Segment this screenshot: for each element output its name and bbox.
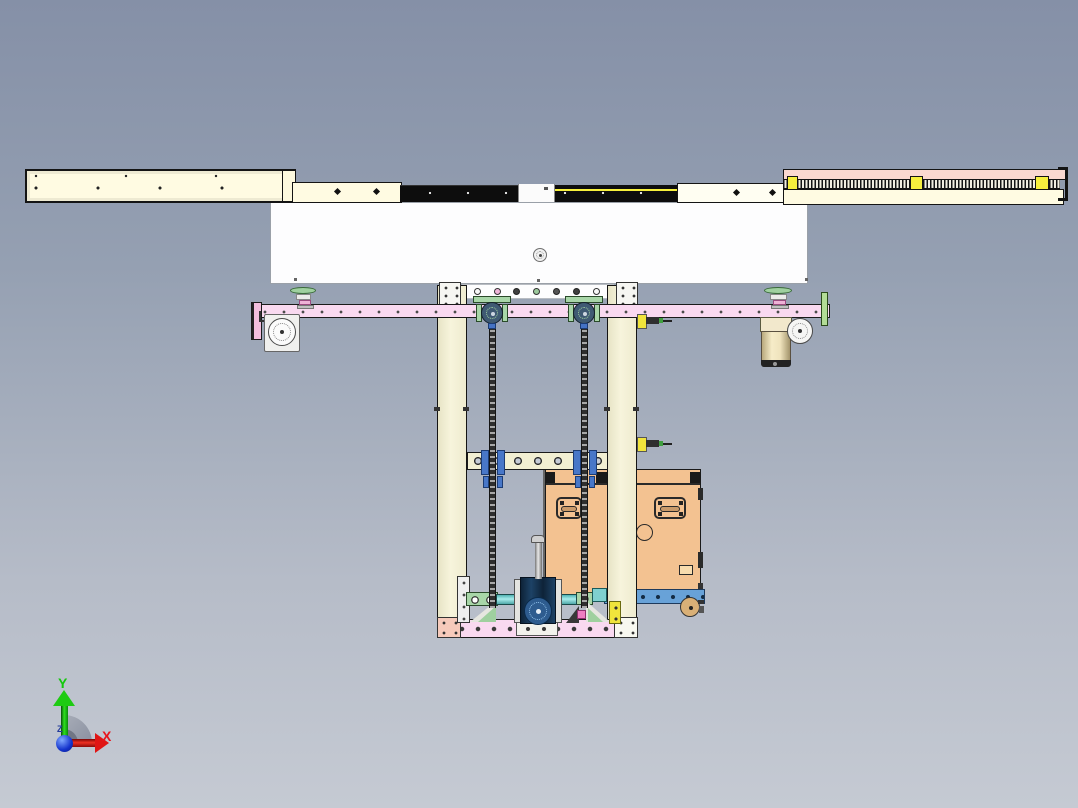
carriage-mark-right (805, 278, 808, 281)
carriage-center-bolt (533, 248, 547, 262)
orange-box-hole (636, 524, 653, 541)
pink-beam (255, 304, 830, 318)
shaft-cap (531, 535, 545, 543)
carriage-box (270, 202, 808, 284)
bearing-disc-green (764, 287, 792, 294)
yellow-stopper (609, 601, 621, 624)
bolt-pink (494, 288, 501, 295)
lift-chain-right (581, 320, 588, 608)
bolt-white (474, 288, 481, 295)
gusset-green (588, 608, 603, 622)
linear-rail-black-right (555, 185, 677, 202)
roller-bracket (699, 606, 704, 613)
rail-gap-carriage (518, 184, 555, 202)
chain-guide (481, 450, 489, 475)
post-top-plate (439, 282, 461, 306)
right-rail-bottom (783, 189, 1064, 205)
cyan-block (592, 588, 607, 602)
bearing-disc-green (290, 287, 316, 294)
roller-wheel (680, 597, 700, 617)
bearing-base (771, 305, 789, 309)
motor-end-cap (761, 360, 791, 367)
right-rail-top-strip (783, 169, 1066, 180)
chain-guide-stub (497, 476, 503, 488)
inner-rail-strip (677, 183, 784, 203)
linear-rail-black-left (400, 185, 518, 202)
left-rail-slider (292, 182, 402, 203)
orange-box-handle[interactable] (556, 497, 582, 519)
bolt-dark (573, 288, 580, 295)
rail-slide-block-yellow (787, 176, 798, 190)
bolt-green (533, 288, 540, 295)
gearbox-flange (555, 579, 562, 623)
proximity-sensor (637, 436, 673, 452)
gear-reducer (787, 318, 813, 344)
orange-box-corner-clip (596, 472, 607, 483)
chain-guide (497, 450, 505, 475)
bearing-base (297, 305, 314, 309)
orange-box-label-plate (679, 565, 693, 575)
frame-post-right (607, 285, 637, 638)
orange-box-corner-clip (544, 472, 555, 483)
orange-box-corner-clip (690, 472, 701, 483)
bolt-white (593, 288, 600, 295)
x-axis-label: X (102, 728, 111, 744)
left-telescopic-rail (25, 169, 296, 203)
post-top-plate (616, 282, 638, 306)
gusset-green (478, 606, 496, 622)
orientation-triad[interactable]: Z Y X (30, 675, 140, 765)
proximity-sensor (637, 313, 673, 329)
chain-guide (589, 450, 597, 475)
motor-body (761, 331, 791, 361)
roller-bracket (698, 600, 704, 604)
orange-box-edge-clip (698, 552, 703, 568)
y-axis-label: Y (58, 675, 67, 691)
chain-guide-stub (575, 476, 581, 488)
sprocket-assembly (476, 301, 508, 327)
right-rail-end-bracket (1058, 167, 1068, 201)
chain-guide (573, 450, 581, 475)
pink-spacer (577, 610, 586, 619)
carriage-mark-mid (537, 279, 540, 282)
carriage-mark-left (294, 278, 297, 281)
rail-slide-block-yellow (910, 176, 923, 190)
z-axis-label: Z (57, 724, 63, 734)
lift-chain-left (489, 320, 496, 608)
orange-box-handle[interactable] (654, 497, 686, 519)
z-axis-sphere[interactable] (56, 735, 73, 752)
gearbox-gear (524, 597, 552, 625)
drive-shaft (535, 541, 542, 579)
cad-viewport[interactable]: Z Y X (0, 0, 1078, 808)
rail-slide-block-yellow (1035, 176, 1049, 190)
sprocket-assembly (568, 301, 600, 327)
guide-rod (543, 470, 545, 588)
post-weld-marks (434, 407, 440, 411)
beam-flange-right (821, 292, 828, 326)
orange-box-edge-clip (698, 488, 703, 500)
y-axis-arrowhead (53, 690, 75, 706)
bolt-dark (553, 288, 560, 295)
bolt-dark (513, 288, 520, 295)
idler-pulley (268, 318, 296, 346)
chain-guide-stub (589, 476, 595, 488)
chain-guide-stub (483, 476, 489, 488)
